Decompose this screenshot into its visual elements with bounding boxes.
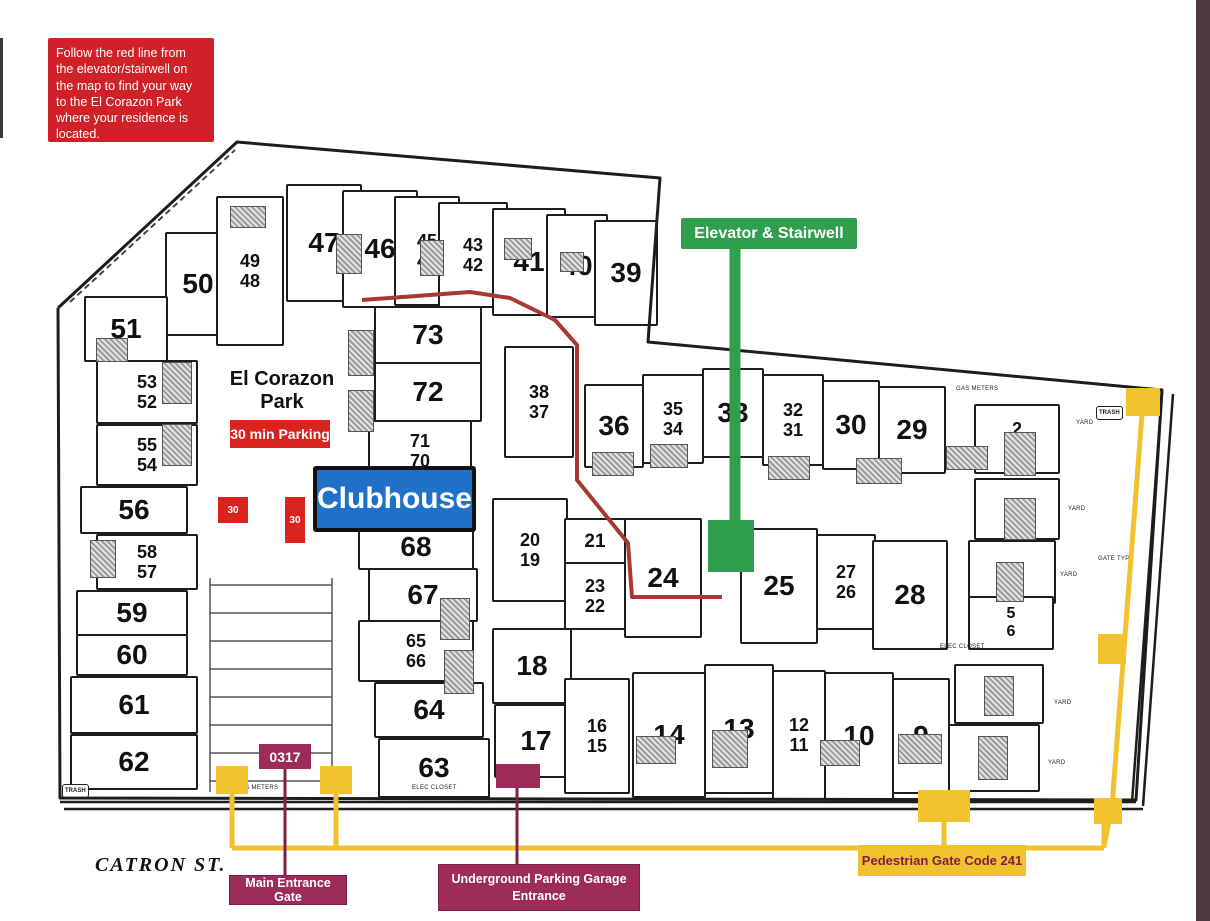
meter-closet-block xyxy=(162,424,192,466)
unit-23-22: 23 22 xyxy=(564,562,626,630)
map-annotation: YARD xyxy=(1048,760,1065,766)
meter-closet-block xyxy=(230,206,266,228)
unit-61: 61 xyxy=(70,676,198,734)
meter-closet-block xyxy=(1004,432,1036,476)
meter-closet-block xyxy=(90,540,116,578)
unit-21: 21 xyxy=(564,518,626,566)
gate-marker xyxy=(1098,634,1126,664)
meter-closet-block xyxy=(946,446,988,470)
meter-closet-block xyxy=(560,252,584,272)
map-annotation: GAS METERS xyxy=(236,785,278,791)
unit-38-37: 38 37 xyxy=(504,346,574,458)
unit-5-6: 5 6 xyxy=(968,596,1054,650)
meter-closet-block xyxy=(996,562,1024,602)
gate-code-0317-label: 0317 xyxy=(259,744,311,769)
meter-closet-block xyxy=(96,338,128,362)
scan-page-edge xyxy=(1196,0,1210,921)
unit-27-26: 27 26 xyxy=(816,534,876,630)
gate-marker xyxy=(918,790,970,822)
underground-parking-garage-label: Underground Parking Garage Entrance xyxy=(438,864,640,911)
pedestrian-gate-code-label: Pedestrian Gate Code 241 xyxy=(858,845,1026,876)
unit-13: 13 xyxy=(704,664,774,794)
unit-20-19: 20 19 xyxy=(492,498,568,602)
unit-59: 59 xyxy=(76,590,188,636)
elevator-stairwell-label: Elevator & Stairwell xyxy=(681,218,857,249)
meter-closet-block xyxy=(348,330,374,376)
street-line xyxy=(1132,392,1162,802)
meter-closet-block xyxy=(820,740,860,766)
unit-73: 73 xyxy=(374,306,482,364)
meter-closet-block xyxy=(856,458,902,484)
catron-street-label: CATRON ST. xyxy=(95,852,235,878)
unit-62: 62 xyxy=(70,734,198,790)
unit-10: 10 xyxy=(824,672,894,800)
meter-closet-block xyxy=(712,730,748,768)
map-annotation: GATE TYP. xyxy=(1098,556,1131,562)
unit-72: 72 xyxy=(374,362,482,422)
pedestrian-path xyxy=(1104,414,1142,846)
meter-closet-block xyxy=(768,456,810,480)
unit-32-31: 32 31 xyxy=(762,374,824,466)
meter-closet-block xyxy=(162,362,192,404)
meter-closet-block xyxy=(650,444,688,468)
gate-marker xyxy=(1126,388,1160,416)
unit-28: 28 xyxy=(872,540,948,650)
trash-enclosure: TRASH xyxy=(62,784,89,798)
unit-18: 18 xyxy=(492,628,572,704)
map-annotation: YARD xyxy=(1068,506,1085,512)
main-entrance-gate-label: Main Entrance Gate xyxy=(229,875,347,905)
thirty-min-parking-label: 30 min Parking xyxy=(230,420,330,448)
meter-closet-block xyxy=(440,598,470,640)
unit-16-15: 16 15 xyxy=(564,678,630,794)
map-annotation: GAS METERS xyxy=(956,386,998,392)
meter-closet-block xyxy=(420,240,444,276)
unit-60: 60 xyxy=(76,634,188,676)
meter-closet-block xyxy=(504,238,532,260)
meter-closet-block xyxy=(898,734,942,764)
meter-closet-block xyxy=(444,650,474,694)
map-annotation: ELEC CLOSET xyxy=(940,644,985,650)
parking-stall-30: 30 xyxy=(218,497,248,523)
site-map-page: 5049 48474645 4443 424140395153 5255 545… xyxy=(0,0,1210,921)
meter-closet-block xyxy=(978,736,1008,780)
meter-closet-block xyxy=(336,234,362,274)
map-annotation: ELEC CLOSET xyxy=(412,785,457,791)
meter-closet-block xyxy=(348,390,374,432)
map-annotation: YARD xyxy=(1076,420,1093,426)
unit-24: 24 xyxy=(624,518,702,638)
unit-25: 25 xyxy=(740,528,818,644)
meter-closet-block xyxy=(1004,498,1036,540)
trash-enclosure: TRASH xyxy=(1096,406,1123,420)
gate-marker xyxy=(1094,798,1122,824)
meter-closet-block xyxy=(984,676,1014,716)
unit-39: 39 xyxy=(594,220,658,326)
gate-marker xyxy=(320,766,352,794)
meter-closet-block xyxy=(592,452,634,476)
meter-closet-block xyxy=(636,736,676,764)
unit-33: 33 xyxy=(702,368,764,458)
clubhouse-label: Clubhouse xyxy=(313,466,476,532)
unit-30: 30 xyxy=(822,380,880,470)
scan-left-edge-mark xyxy=(0,38,3,138)
instruction-note: Follow the red line from the elevator/st… xyxy=(48,38,214,142)
parking-stall-30: 30 xyxy=(285,497,305,543)
unit-12-11: 12 11 xyxy=(772,670,826,800)
map-annotation: YARD xyxy=(1054,700,1071,706)
map-annotation: YARD xyxy=(1060,572,1077,578)
el-corazon-park-label: El Corazon Park xyxy=(224,366,340,416)
unit-14: 14 xyxy=(632,672,706,798)
unit-56: 56 xyxy=(80,486,188,534)
street-line xyxy=(1143,394,1173,806)
